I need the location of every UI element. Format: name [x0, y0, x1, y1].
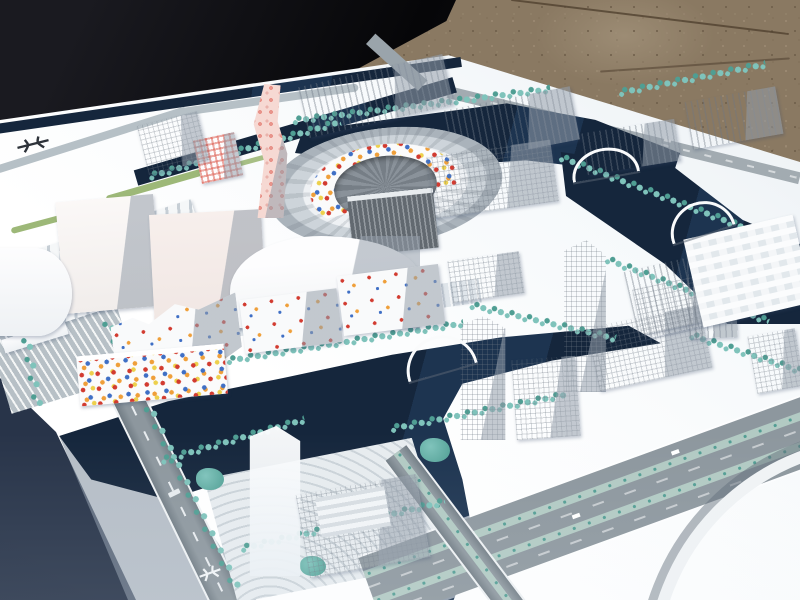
- dotted-housing: [337, 264, 446, 336]
- canal-tower: [452, 316, 514, 440]
- slab-building: [511, 356, 580, 440]
- tree-cluster: [196, 468, 224, 490]
- photo-architectural-model: [0, 0, 800, 600]
- tree-cluster: [420, 438, 450, 462]
- model-car: [671, 449, 680, 455]
- curved-building: [0, 248, 72, 336]
- model-car: [572, 513, 581, 519]
- edge-slab: [747, 328, 800, 393]
